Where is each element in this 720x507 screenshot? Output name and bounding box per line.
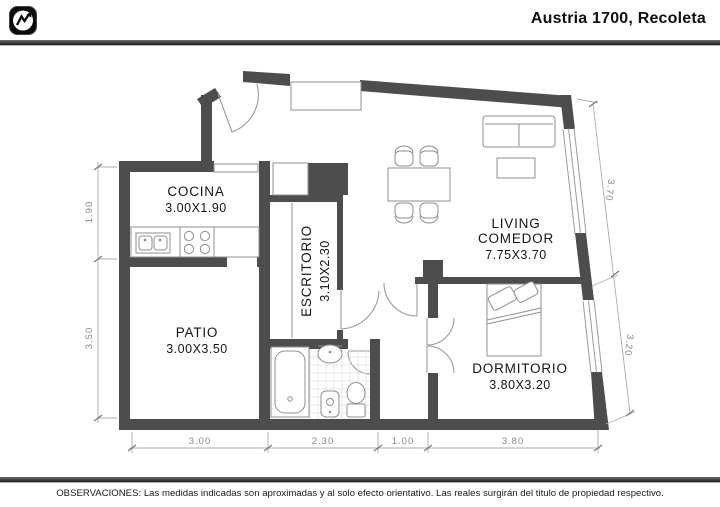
footer-observations: OBSERVACIONES: Las medidas indicadas son… — [0, 488, 720, 499]
sink-drain-2 — [159, 239, 162, 242]
washbasin — [318, 345, 342, 363]
dim-bottom-1: 3.00 — [189, 436, 212, 447]
bathtub — [271, 347, 309, 417]
bedroom-west-wall-b — [428, 373, 438, 419]
bidet-drain — [329, 411, 331, 413]
bedroom-window — [583, 300, 602, 373]
office-east-wall — [337, 202, 343, 290]
room-size-dormitorio: 3.80X3.20 — [489, 378, 551, 392]
room-label-dormitorio: DORMITORIO — [472, 361, 568, 376]
top-wall-a — [243, 71, 290, 86]
dim-bottom-4: 3.80 — [502, 436, 525, 447]
kitchen-top-wall — [119, 161, 214, 172]
bottom-wall — [119, 419, 608, 430]
room-label-cocina: COCINA — [167, 184, 224, 199]
living-window — [563, 128, 586, 234]
chair — [420, 203, 438, 218]
duct-column — [308, 163, 348, 195]
room-label-escritorio: ESCRITORIO — [299, 225, 314, 317]
floorplan-page: Austria 1700, Recoleta — [0, 0, 720, 507]
bath-east-wall — [370, 339, 380, 419]
living-bedroom-divider — [415, 277, 582, 284]
top-wall-b — [360, 80, 571, 108]
hall-shelf — [214, 164, 258, 172]
kitchen-patio-divider — [119, 257, 227, 267]
dim-right-bottom: 3.20 — [622, 333, 635, 357]
sink-drain — [144, 239, 147, 242]
living-furniture — [388, 116, 555, 223]
room-size-escritorio: 3.10X2.30 — [318, 240, 332, 302]
dim-left-top: 1.90 — [84, 201, 95, 224]
floor-plan-canvas: 1.90 3.50 3.00 2.30 1.00 3.80 3.70 3.20 … — [0, 0, 720, 507]
footer-divider — [0, 477, 720, 483]
office-top-wall — [270, 195, 343, 202]
bedroom-double-door — [427, 318, 454, 373]
chair — [395, 203, 413, 218]
top-niche — [291, 82, 361, 110]
stove — [180, 227, 214, 257]
hall-closet — [273, 163, 308, 195]
dim-right-top: 3.70 — [603, 178, 616, 202]
room-size-living: 7.75X3.70 — [485, 248, 547, 262]
chair — [395, 151, 413, 166]
basin-drain — [329, 351, 332, 354]
entrance-door — [218, 84, 258, 132]
central-west-wall — [259, 161, 270, 419]
hall-pier — [423, 260, 443, 277]
right-wall-top — [560, 95, 575, 129]
bedroom-west-wall-a — [428, 284, 438, 318]
room-label-living-2: COMEDOR — [478, 231, 554, 246]
dining-table — [388, 168, 450, 201]
coffee-table — [497, 158, 535, 178]
dim-left-bottom: 3.50 — [84, 327, 95, 350]
chair — [420, 151, 438, 166]
kitchen-fixtures — [131, 227, 259, 257]
bathroom-fixtures — [270, 345, 370, 419]
corridor-door — [384, 283, 417, 316]
office-east-stub — [337, 330, 343, 339]
toilet-tank — [347, 404, 365, 417]
left-wall — [119, 161, 130, 430]
room-label-patio: PATIO — [176, 325, 219, 340]
dim-bottom-3: 1.00 — [392, 436, 415, 447]
room-size-patio: 3.00X3.50 — [166, 342, 228, 356]
office-door — [341, 289, 379, 329]
bedroom-furniture — [487, 281, 541, 356]
room-label-living: LIVING — [491, 216, 540, 231]
dim-bottom-2: 2.30 — [312, 436, 335, 447]
bath-door — [348, 351, 370, 374]
right-wall-mid — [575, 233, 594, 300]
room-size-cocina: 3.00X1.90 — [165, 201, 227, 215]
toilet-bowl — [347, 383, 365, 404]
